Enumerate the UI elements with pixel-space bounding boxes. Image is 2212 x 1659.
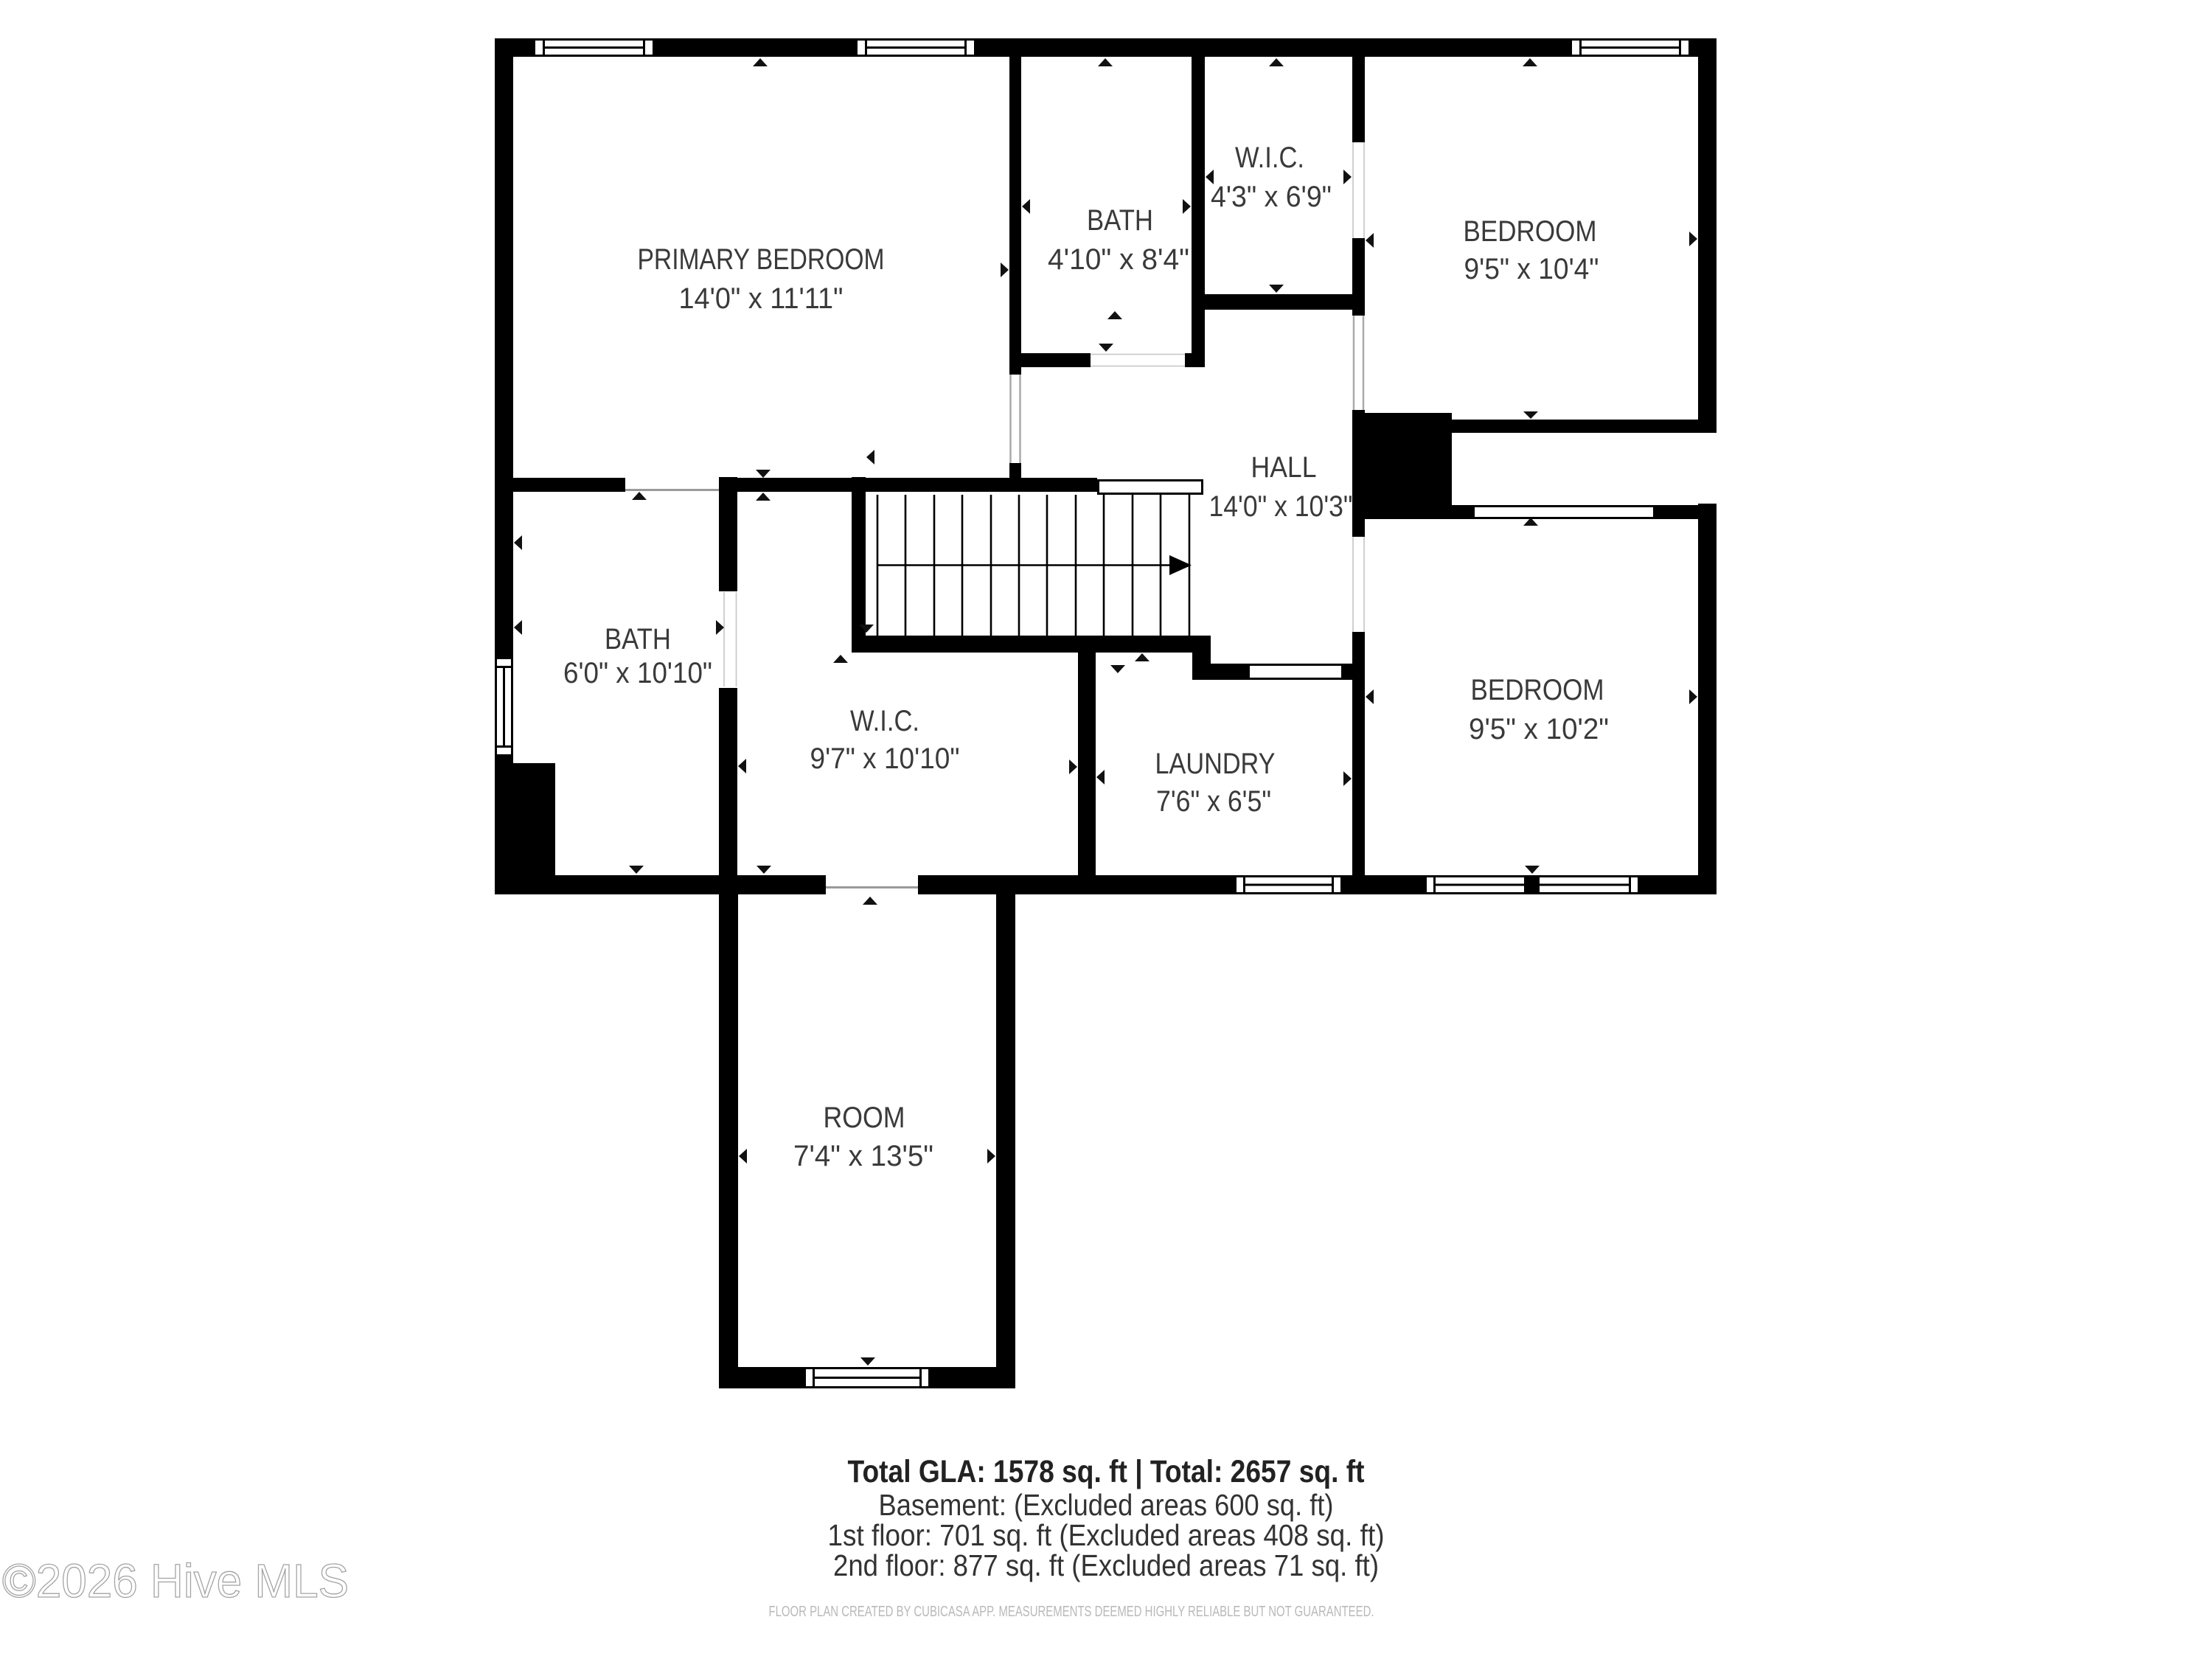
- svg-text:9'5" x 10'2": 9'5" x 10'2": [1469, 713, 1609, 745]
- svg-text:BEDROOM: BEDROOM: [1471, 674, 1604, 706]
- svg-text:9'7" x 10'10": 9'7" x 10'10": [810, 742, 960, 775]
- svg-text:7'6" x 6'5": 7'6" x 6'5": [1156, 785, 1271, 818]
- svg-text:BEDROOM: BEDROOM: [1464, 215, 1597, 248]
- svg-text:4'10" x 8'4": 4'10" x 8'4": [1048, 243, 1189, 276]
- svg-text:6'0" x 10'10": 6'0" x 10'10": [563, 657, 712, 689]
- svg-text:HALL: HALL: [1251, 451, 1317, 484]
- svg-text:W.I.C.: W.I.C.: [850, 705, 919, 737]
- svg-text:9'5" x 10'4": 9'5" x 10'4": [1464, 253, 1599, 285]
- svg-text:LAUNDRY: LAUNDRY: [1155, 748, 1276, 780]
- svg-text:14'0" x 11'11": 14'0" x 11'11": [679, 282, 844, 315]
- svg-text:Total GLA: 1578 sq. ft | Total: Total GLA: 1578 sq. ft | Total: 2657 sq.…: [848, 1454, 1365, 1489]
- svg-text:4'3" x 6'9": 4'3" x 6'9": [1211, 181, 1332, 213]
- svg-text:14'0" x 10'3": 14'0" x 10'3": [1209, 490, 1353, 523]
- svg-text:7'4" x 13'5": 7'4" x 13'5": [793, 1140, 933, 1172]
- svg-text:Basement: (Excluded areas 600: Basement: (Excluded areas 600 sq. ft): [879, 1488, 1334, 1522]
- svg-text:1st floor: 701 sq. ft (Exclude: 1st floor: 701 sq. ft (Excluded areas 40…: [828, 1518, 1385, 1552]
- svg-text:2nd floor: 877 sq. ft (Exclude: 2nd floor: 877 sq. ft (Excluded areas 71…: [833, 1548, 1379, 1582]
- svg-text:PRIMARY BEDROOM: PRIMARY BEDROOM: [638, 243, 885, 276]
- svg-text:W.I.C.: W.I.C.: [1235, 142, 1304, 174]
- svg-text:BATH: BATH: [605, 623, 671, 655]
- svg-text:ROOM: ROOM: [824, 1102, 905, 1134]
- svg-text:BATH: BATH: [1087, 204, 1153, 237]
- svg-text:©2026 Hive MLS: ©2026 Hive MLS: [2, 1554, 349, 1607]
- svg-text:FLOOR PLAN CREATED BY CUBICASA: FLOOR PLAN CREATED BY CUBICASA APP. MEAS…: [769, 1604, 1374, 1620]
